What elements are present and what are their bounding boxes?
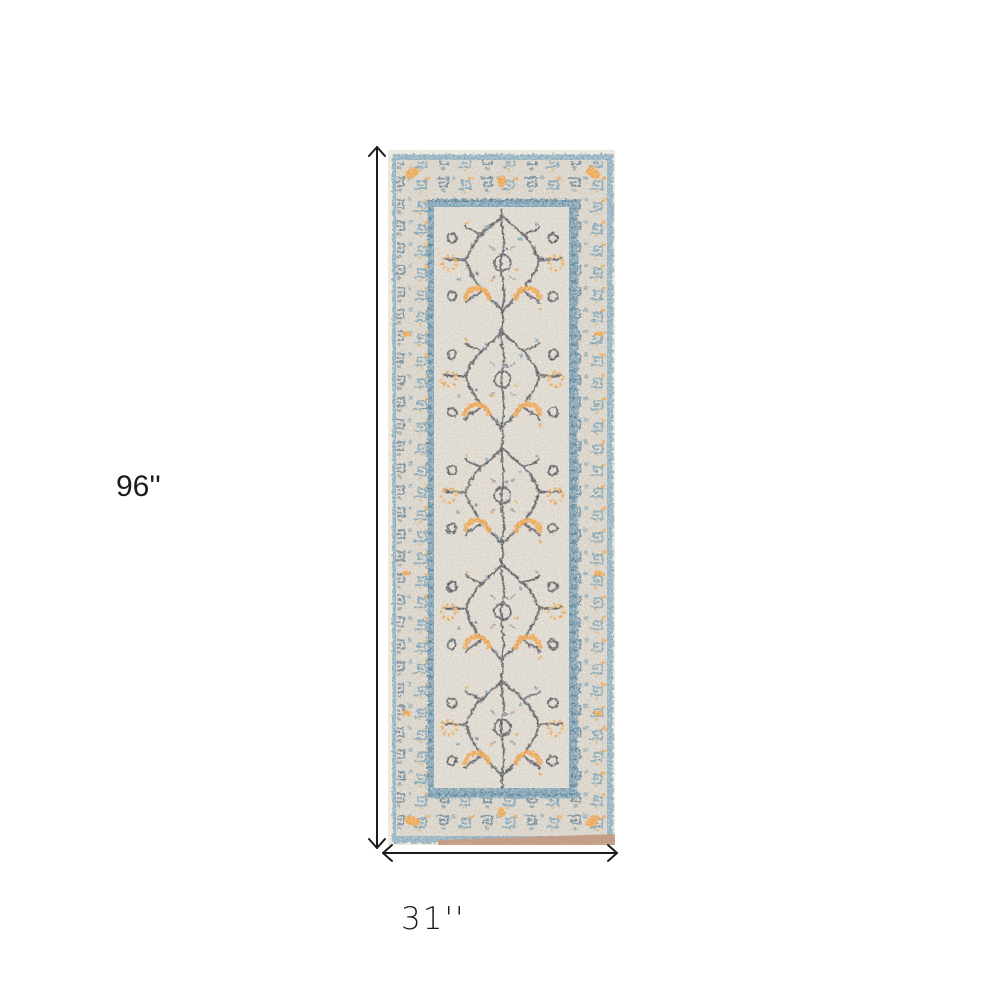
width-dimension-arrow [380, 842, 620, 864]
product-dimension-figure: 96'' 31'' [0, 0, 1000, 1000]
width-dimension-label: 31'' [401, 901, 466, 937]
rug-photo [388, 150, 615, 845]
height-dimension-label: 96'' [116, 470, 161, 504]
rug-graphic [388, 150, 615, 845]
height-dimension-arrow [365, 139, 389, 857]
